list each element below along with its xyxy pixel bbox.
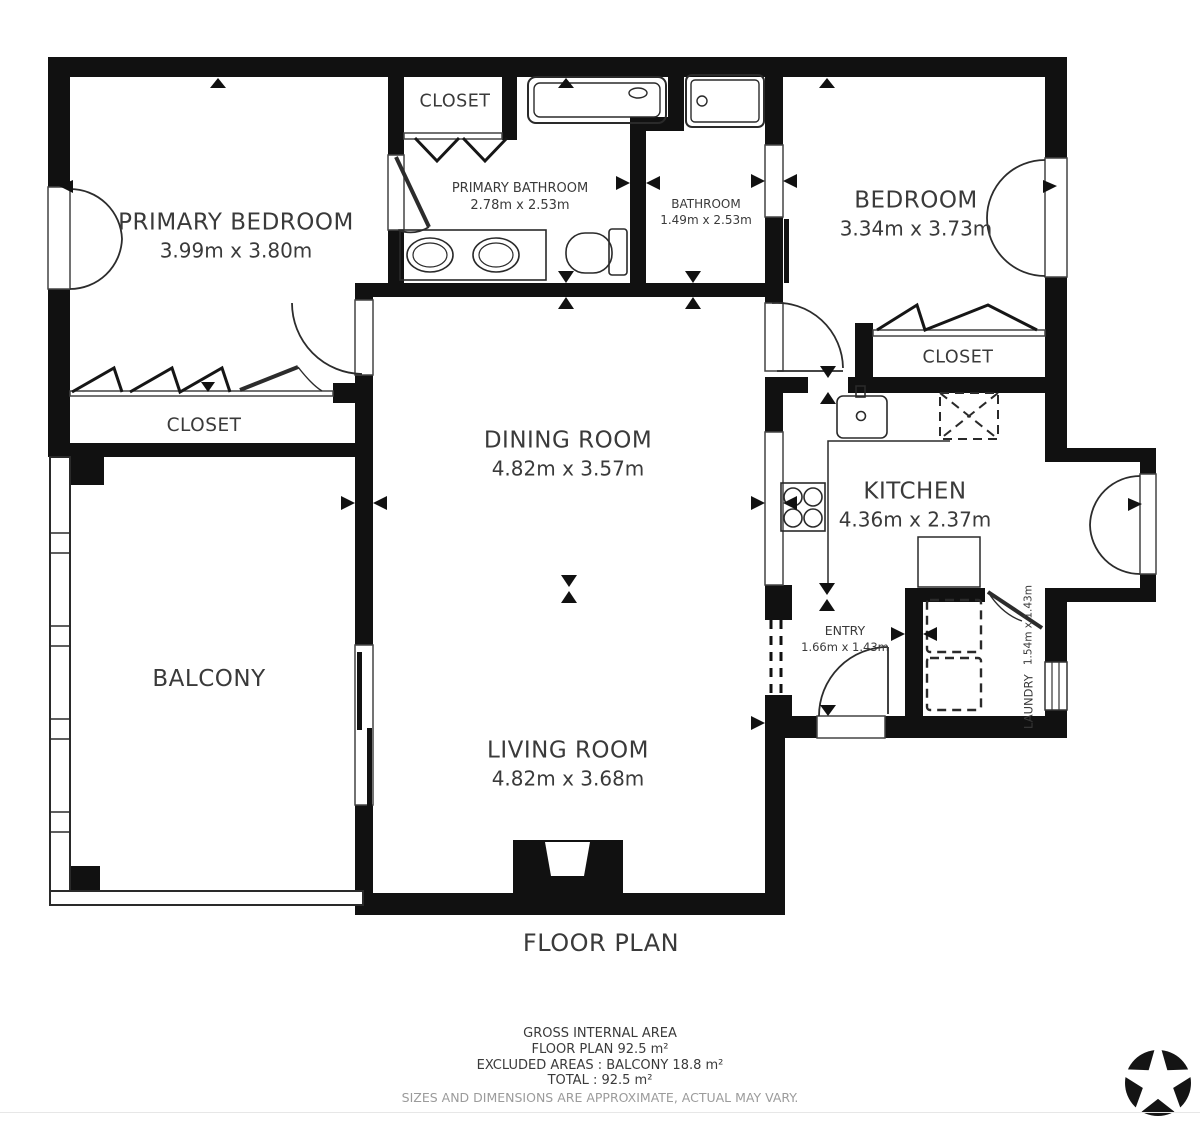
label-primary-bathroom: PRIMARY BATHROOM 2.78m x 2.53m: [452, 180, 588, 214]
kitchen-island: [918, 537, 980, 587]
room-name: BEDROOM: [840, 186, 993, 216]
room-name: PRIMARY BEDROOM: [118, 208, 354, 238]
right-closet-bifold: [877, 305, 1037, 330]
star-pinwheel-logo: [1123, 1048, 1195, 1120]
label-primary-bedroom: PRIMARY BEDROOM 3.99m x 3.80m: [118, 208, 354, 265]
room-name: DINING ROOM: [484, 426, 652, 456]
room-name: LAUNDRY: [1021, 674, 1036, 729]
total-area: TOTAL : 92.5 m²: [0, 1073, 1200, 1089]
page-title: FLOOR PLAN: [523, 929, 679, 957]
label-dining-room: DINING ROOM 4.82m x 3.57m: [484, 426, 652, 483]
room-name: BALCONY: [152, 664, 265, 694]
fireplace-opening: [545, 842, 590, 876]
room-dims: 1.66m x 1.43m: [801, 640, 889, 655]
room-name: ENTRY: [801, 623, 889, 640]
room-name: BATHROOM: [660, 197, 752, 213]
page-bottom-divider: [0, 1112, 1200, 1113]
room-dims: 4.82m x 3.68m: [487, 766, 649, 792]
room-dims: 2.78m x 2.53m: [452, 197, 588, 214]
room-name: CLOSET: [420, 90, 491, 113]
bifold-doors: [72, 138, 1037, 392]
label-kitchen: KITCHEN 4.36m x 2.37m: [839, 477, 992, 534]
label-closet-top: CLOSET: [420, 90, 491, 113]
top-closet-bifold: [415, 138, 507, 161]
floor-plan-page: PRIMARY BEDROOM 3.99m x 3.80m CLOSET PRI…: [0, 0, 1200, 1130]
washer-dryer-dashed: [927, 600, 981, 710]
floor-plan-drawing: [0, 0, 1200, 1130]
vanity-double-sink: [400, 230, 546, 280]
room-dims: 1.49m x 2.53m: [660, 213, 752, 229]
excluded-areas: EXCLUDED AREAS : BALCONY 18.8 m²: [0, 1058, 1200, 1074]
label-living-room: LIVING ROOM 4.82m x 3.68m: [487, 736, 649, 793]
room-dims: 4.36m x 2.37m: [839, 507, 992, 533]
toilet: [566, 229, 627, 275]
label-balcony: BALCONY: [152, 664, 265, 694]
room-dims: 1.54m x 1.43m: [1022, 585, 1036, 665]
label-entry: ENTRY 1.66m x 1.43m: [801, 623, 889, 655]
label-laundry: LAUNDRY 1.54m x 1.43m: [1017, 583, 1038, 731]
gross-internal-area: GROSS INTERNAL AREA: [0, 1026, 1200, 1042]
bathtub: [528, 77, 666, 123]
label-closet-right: CLOSET: [923, 346, 994, 369]
entry-dashed-opening: [771, 620, 781, 697]
kitchen-sink: [837, 386, 887, 438]
direction-markers: [59, 78, 1142, 730]
room-name: CLOSET: [923, 346, 994, 369]
room-name: PRIMARY BATHROOM: [452, 180, 588, 197]
label-bedroom: BEDROOM 3.34m x 3.73m: [840, 186, 993, 243]
area-summary: GROSS INTERNAL AREA FLOOR PLAN 92.5 m² E…: [0, 1026, 1200, 1106]
label-bathroom: BATHROOM 1.49m x 2.53m: [660, 197, 752, 229]
shower: [686, 75, 764, 127]
room-dims: 3.34m x 3.73m: [840, 216, 993, 242]
room-dims: 3.99m x 3.80m: [118, 238, 354, 264]
room-name: KITCHEN: [839, 477, 992, 507]
room-dims: 4.82m x 3.57m: [484, 456, 652, 482]
floor-plan-area: FLOOR PLAN 92.5 m²: [0, 1042, 1200, 1058]
disclaimer-text: SIZES AND DIMENSIONS ARE APPROXIMATE, AC…: [0, 1090, 1200, 1106]
dishwasher-dashed: [940, 393, 998, 439]
room-name: CLOSET: [167, 414, 242, 438]
laundry-window: [1045, 662, 1067, 710]
label-closet-left: CLOSET: [167, 414, 242, 438]
room-name: LIVING ROOM: [487, 736, 649, 766]
cooktop: [781, 483, 825, 531]
